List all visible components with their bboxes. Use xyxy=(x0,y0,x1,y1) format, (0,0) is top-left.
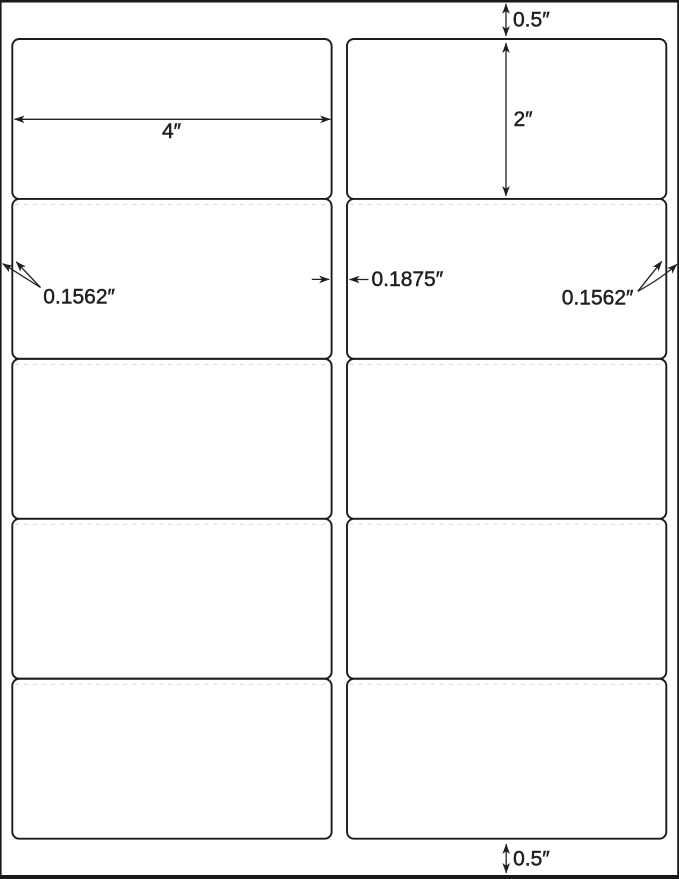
svg-text:0.1875″: 0.1875″ xyxy=(372,268,444,291)
svg-text:2″: 2″ xyxy=(514,108,534,131)
svg-text:0.5″: 0.5″ xyxy=(513,848,550,871)
svg-text:4″: 4″ xyxy=(162,120,182,143)
svg-text:0.1562″: 0.1562″ xyxy=(43,285,115,308)
svg-text:0.1562″: 0.1562″ xyxy=(562,287,634,310)
svg-text:0.5″: 0.5″ xyxy=(513,9,550,32)
